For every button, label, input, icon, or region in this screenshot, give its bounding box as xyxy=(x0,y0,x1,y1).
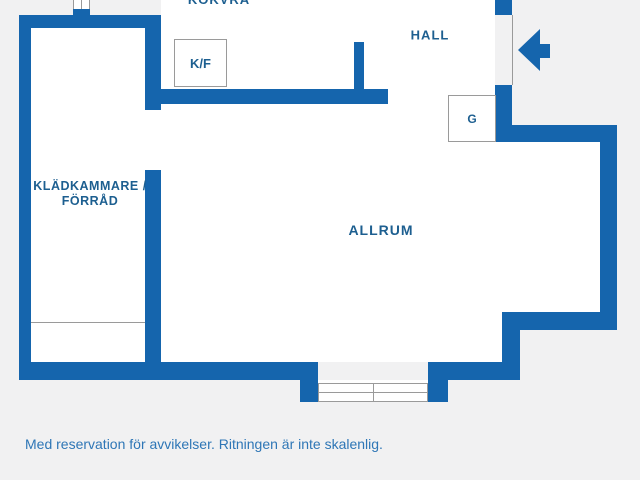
window-top-sill xyxy=(73,9,90,15)
fridge-freezer-label: K/F xyxy=(190,56,211,71)
wall-bottom xyxy=(19,362,318,380)
room-label-kladkammare: KLÄDKAMMARE / FÖRRÅD xyxy=(33,179,146,209)
window-divider-line xyxy=(373,384,374,401)
wall-right xyxy=(600,125,617,330)
room-label-hall: HALL xyxy=(411,28,450,43)
wardrobe-label: G xyxy=(467,112,476,126)
disclaimer-text: Med reservation för avvikelser. Ritninge… xyxy=(25,436,383,452)
kladkammare-label-line1: KLÄDKAMMARE / xyxy=(33,179,146,194)
entrance-arrow-icon xyxy=(516,26,552,74)
wall-stub-kokvra-hall xyxy=(354,42,364,89)
room-allrum-floor-lower xyxy=(161,330,520,362)
wall-hall-right-upper xyxy=(495,0,512,15)
fridge-freezer-box: K/F xyxy=(174,39,227,87)
wall-inner-kladkammare xyxy=(145,170,161,380)
wall-left xyxy=(19,15,31,380)
wall-top-right xyxy=(495,125,617,142)
entrance-door-opening-line xyxy=(512,15,513,85)
room-label-allrum: ALLRUM xyxy=(348,222,413,238)
wall-window-block-right xyxy=(428,380,448,402)
wall-top-left xyxy=(19,15,161,28)
wall-window-block-left xyxy=(300,380,318,402)
wall-step-horizontal-lower xyxy=(428,362,520,380)
room-label-kokvra: KOKVRÅ xyxy=(188,0,250,7)
kladkammare-label-line2: FÖRRÅD xyxy=(33,194,146,209)
floor-plan: K/F G KOKVRÅ HALL KLÄDKAMMARE / FÖRRÅD A… xyxy=(0,0,640,480)
kladkammare-shelf-line xyxy=(31,322,145,323)
wardrobe-box: G xyxy=(448,95,496,142)
wall-kitchen-bottom xyxy=(145,89,388,104)
window-symbol-bottom xyxy=(318,383,428,402)
door-opening-kladkammare xyxy=(145,110,161,170)
